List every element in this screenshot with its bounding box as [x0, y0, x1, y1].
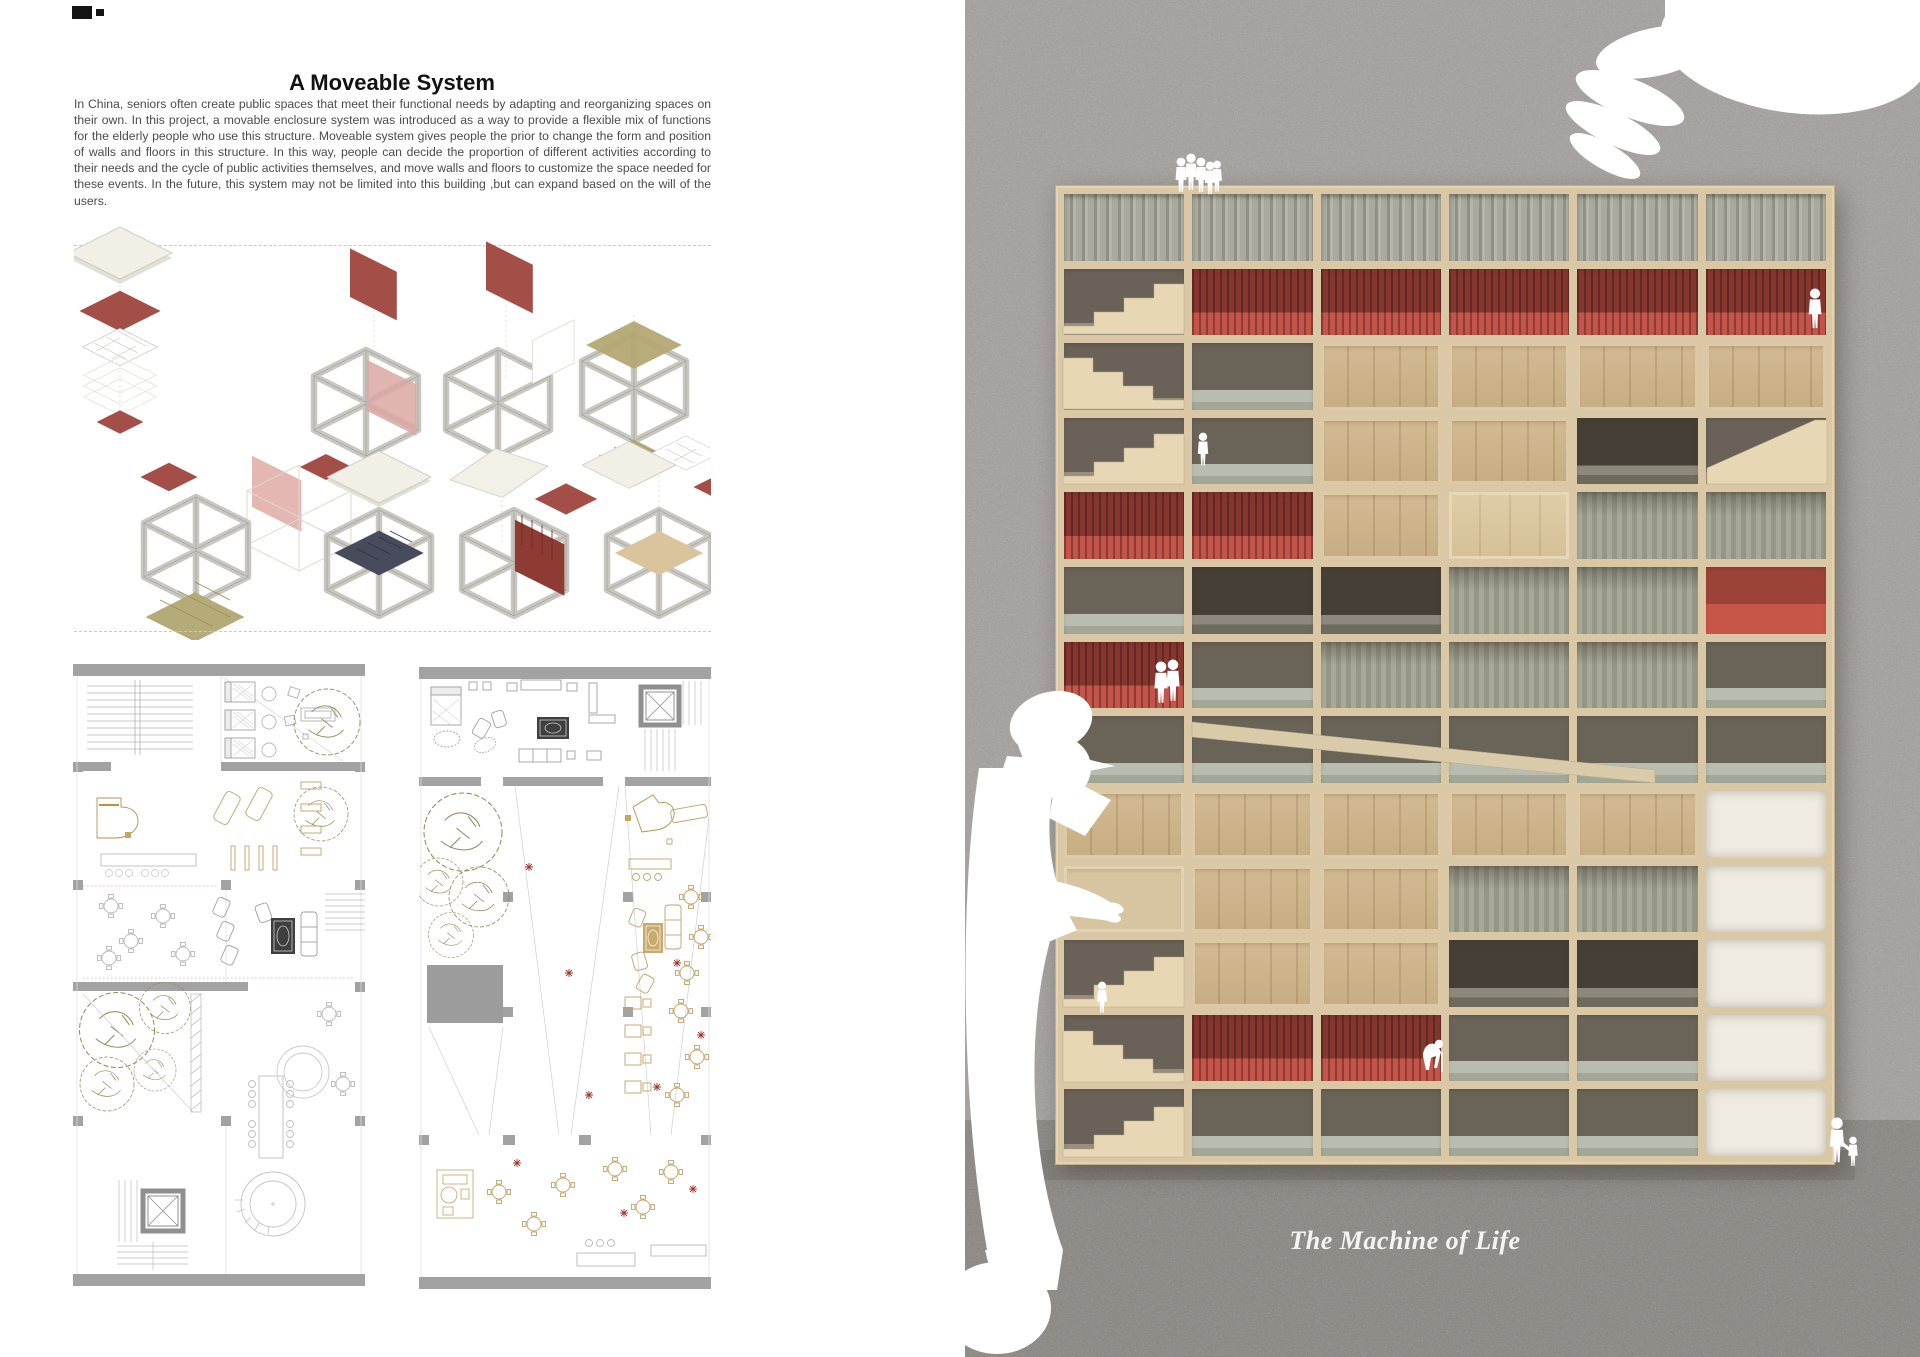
model-cell-open: [1706, 642, 1826, 709]
model-cell-tan: [1321, 791, 1441, 858]
rug: [271, 918, 295, 954]
kitchen-unit: [437, 1170, 473, 1218]
spiral-stair: [235, 1172, 305, 1236]
model-cell-dark: [1192, 567, 1312, 634]
model-cell-corr: [1321, 194, 1441, 261]
model-cell-curtain: [1449, 866, 1569, 933]
rug-tan: [643, 923, 663, 953]
elevator: [641, 687, 679, 725]
model-cell-corr: [1064, 194, 1184, 261]
model-cell-ramp: [1321, 716, 1441, 783]
model-cell-dark: [1577, 418, 1697, 485]
model-cell-red: [1577, 269, 1697, 336]
model-cell-open: [1577, 716, 1697, 783]
intro-paragraph: In China, seniors often create public sp…: [74, 96, 711, 209]
photo-caption: The Machine of Life: [1055, 1226, 1755, 1256]
model-cell-red: [1064, 642, 1184, 709]
model-cell-curtain: [1577, 492, 1697, 559]
model-cell-tan: [1577, 343, 1697, 410]
model-cell-corr: [1706, 194, 1826, 261]
elevator: [143, 1191, 183, 1231]
model-cell-white: [1706, 866, 1826, 933]
hatch-wall: [191, 994, 201, 1112]
floor-plan-left: [73, 664, 365, 1286]
model-cell-tan: [1321, 866, 1441, 933]
model-cell-open: [1064, 567, 1184, 634]
left-panel: A Moveable System In China, seniors ofte…: [0, 0, 965, 1357]
model-cell-tan: [1449, 343, 1569, 410]
model-cell-white: [1706, 940, 1826, 1007]
model-grid: [1055, 185, 1835, 1165]
model-cell-open: [1706, 716, 1826, 783]
model-cell-stair: [1064, 940, 1184, 1007]
moveable-system-diagrams: [74, 215, 711, 640]
model-cell-tan: [1577, 791, 1697, 858]
model-cell-dark: [1577, 940, 1697, 1007]
model-cell-red: [1706, 269, 1826, 336]
model-cell-tan: [1449, 418, 1569, 485]
model-cell-stair: [1064, 1089, 1184, 1156]
model-cell-curtain: [1577, 642, 1697, 709]
corner-mark: [72, 6, 92, 19]
model-cell-open: [1192, 343, 1312, 410]
model-cell-open: [1321, 1089, 1441, 1156]
model-photo-panel: The Machine of Life: [965, 0, 1920, 1357]
model-cell-stair: [1064, 418, 1184, 485]
model-cell-tan: [1321, 940, 1441, 1007]
model-cell-red: [1321, 269, 1441, 336]
model-cell-corr: [1577, 194, 1697, 261]
model-cell-curtain: [1706, 492, 1826, 559]
model-cell-curtain: [1449, 642, 1569, 709]
diagram-cube-redwall: [447, 442, 598, 616]
model-cell-open: [1192, 642, 1312, 709]
model-cell-white: [1706, 1089, 1826, 1156]
model-cell-tan: [1321, 343, 1441, 410]
long-table: [249, 1076, 294, 1158]
model-cell-open: [1577, 1089, 1697, 1156]
model-cell-tan: [1706, 343, 1826, 410]
model-cell-white: [1706, 1015, 1826, 1082]
model-cell-red: [1192, 1015, 1312, 1082]
diagram-cube-tanfloor: [582, 436, 711, 616]
plan-walls: [73, 664, 365, 1286]
model-cell-tanL: [1449, 492, 1569, 559]
model-cell-dark: [1321, 567, 1441, 634]
model-cell-tan: [1192, 866, 1312, 933]
model-cell-red: [1192, 269, 1312, 336]
model-cell-tan: [1321, 492, 1441, 559]
model-cell-white: [1706, 791, 1826, 858]
rug-dark: [537, 717, 569, 739]
spiral-stair-2: [277, 1046, 329, 1098]
model-cell-tan: [1192, 940, 1312, 1007]
model-cell-red: [1321, 1015, 1441, 1082]
model-cell-red: [1192, 492, 1312, 559]
model-cell-open: [1577, 1015, 1697, 1082]
model-cell-corr: [1192, 194, 1312, 261]
portfolio-page: A Moveable System In China, seniors ofte…: [0, 0, 1920, 1357]
model-cell-ramp: [1449, 716, 1569, 783]
model-cell-stair: [1064, 269, 1184, 336]
model-cell-open: [1449, 1089, 1569, 1156]
stage-block: [427, 965, 503, 1023]
model-cell-curtain: [1449, 567, 1569, 634]
model-cell-corr: [1449, 194, 1569, 261]
diagram-cube-navy: [327, 451, 431, 616]
model-cell-redB: [1706, 567, 1826, 634]
piano: [97, 798, 138, 838]
model-cell-open: [1449, 1015, 1569, 1082]
model-cell-tan: [1449, 791, 1569, 858]
model-cell-plain: [1064, 866, 1184, 933]
diagram-cube-pink: [314, 248, 418, 456]
piano: [625, 795, 674, 832]
model-cell-red: [1064, 492, 1184, 559]
model-cell-stair: [1064, 343, 1184, 410]
model-cell-curtain: [1577, 567, 1697, 634]
diagram-cube-planks: [140, 454, 352, 640]
model-cell-open: [1064, 716, 1184, 783]
floor-plan-right: [419, 667, 711, 1289]
model-cell-curtain: [1577, 866, 1697, 933]
diagram-exploded-stack: [74, 227, 172, 434]
model-cell-tan: [1192, 791, 1312, 858]
model-cell-stair: [1064, 1015, 1184, 1082]
model-cell-open: [1192, 418, 1312, 485]
page-title: A Moveable System: [74, 70, 710, 96]
model-cell-ramp: [1192, 716, 1312, 783]
model-cell-curtain: [1321, 642, 1441, 709]
model-cell-open: [1192, 1089, 1312, 1156]
model-cell-tan: [1064, 791, 1184, 858]
model-cell-dark: [1449, 940, 1569, 1007]
model-cell-tan: [1321, 418, 1441, 485]
model-cell-stairR: [1706, 418, 1826, 485]
dashed-divider-bottom: [74, 631, 711, 632]
model-cell-red: [1449, 269, 1569, 336]
